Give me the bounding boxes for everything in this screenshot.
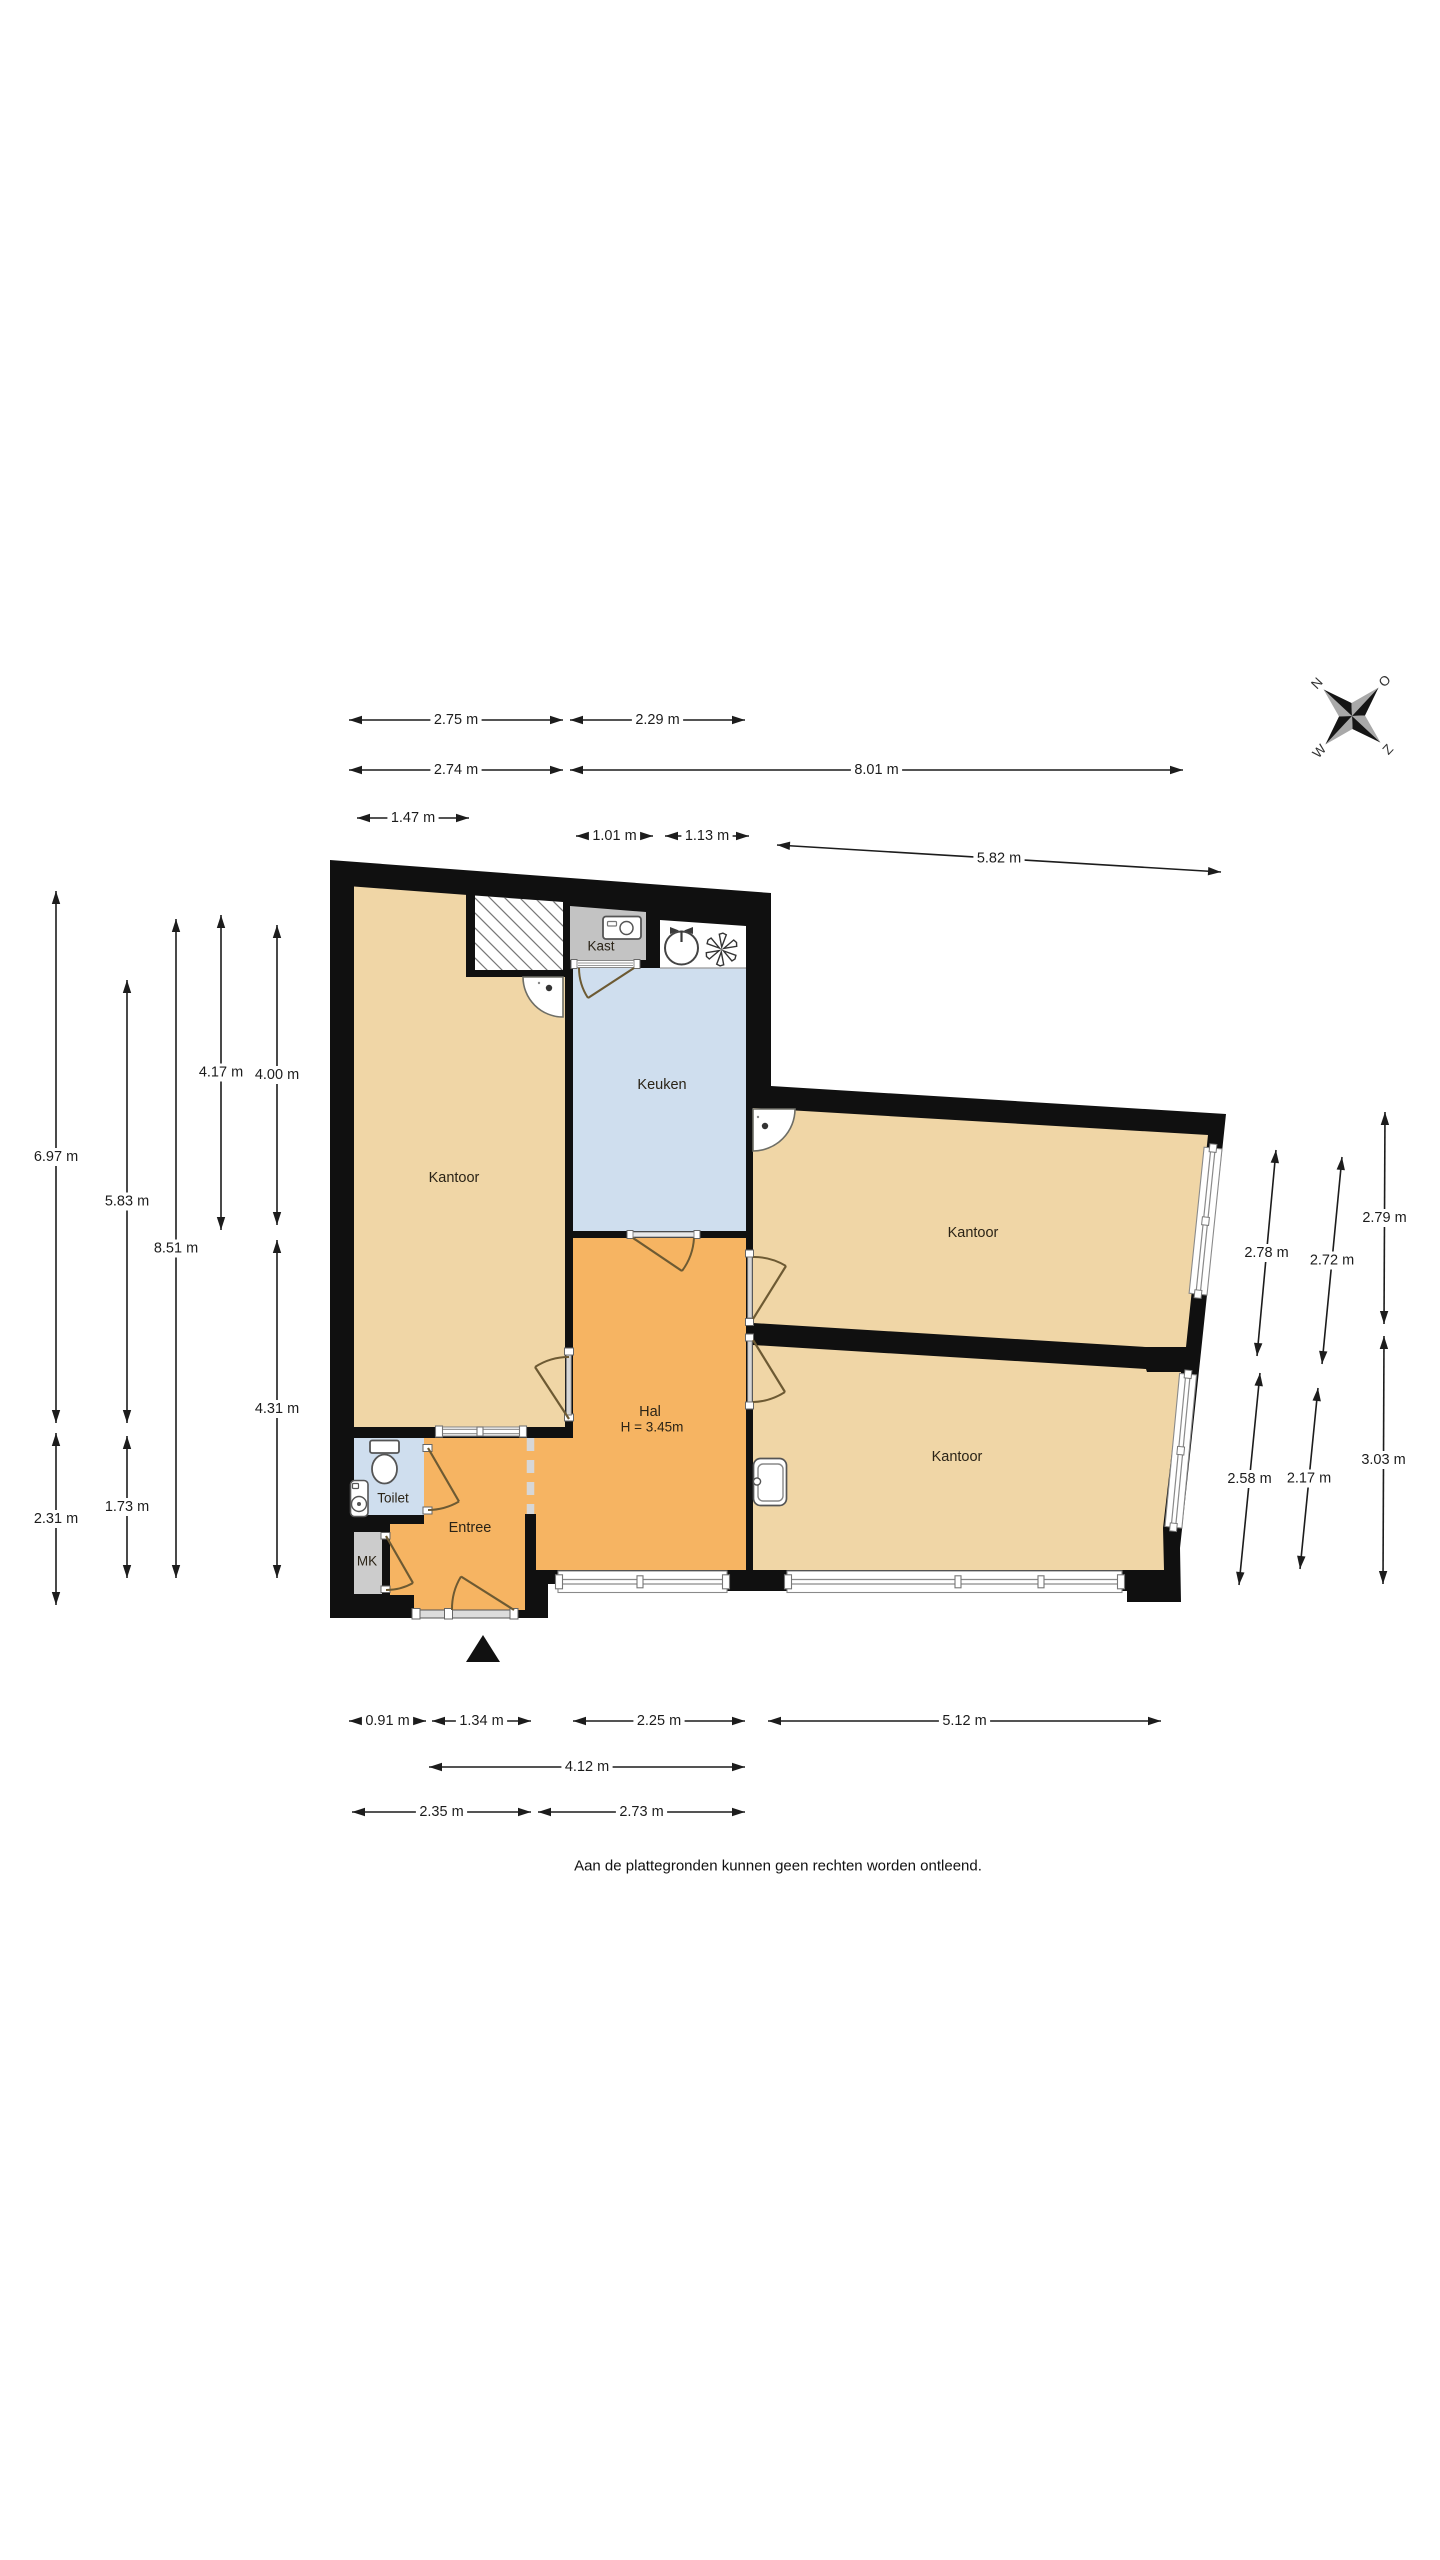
svg-text:Toilet: Toilet <box>377 1491 409 1506</box>
svg-text:2.72 m: 2.72 m <box>1310 1253 1354 1269</box>
svg-text:4.00 m: 4.00 m <box>255 1067 299 1083</box>
svg-text:Kantoor: Kantoor <box>932 1449 983 1465</box>
svg-text:2.79 m: 2.79 m <box>1362 1210 1406 1226</box>
svg-text:2.29 m: 2.29 m <box>635 712 679 728</box>
svg-text:2.73 m: 2.73 m <box>619 1804 663 1820</box>
svg-text:Kantoor: Kantoor <box>948 1225 999 1241</box>
svg-text:Aan de plattegronden kunnen ge: Aan de plattegronden kunnen geen rechten… <box>574 1858 982 1875</box>
svg-text:MK: MK <box>357 1554 377 1569</box>
svg-text:4.17 m: 4.17 m <box>199 1065 243 1081</box>
svg-text:2.17 m: 2.17 m <box>1287 1471 1331 1487</box>
svg-text:4.31 m: 4.31 m <box>255 1401 299 1417</box>
svg-text:2.25 m: 2.25 m <box>637 1713 681 1729</box>
svg-text:N: N <box>1308 675 1326 692</box>
svg-text:Kast: Kast <box>587 939 614 954</box>
svg-text:W: W <box>1309 741 1329 761</box>
svg-text:5.83 m: 5.83 m <box>105 1194 149 1210</box>
svg-text:2.78 m: 2.78 m <box>1244 1245 1288 1261</box>
svg-text:5.12 m: 5.12 m <box>942 1713 986 1729</box>
svg-text:1.73 m: 1.73 m <box>105 1499 149 1515</box>
svg-text:2.58 m: 2.58 m <box>1227 1471 1271 1487</box>
svg-text:5.82 m: 5.82 m <box>977 851 1021 867</box>
svg-text:Entree: Entree <box>449 1520 492 1536</box>
svg-text:8.01 m: 8.01 m <box>854 762 898 778</box>
svg-text:O: O <box>1376 672 1394 690</box>
svg-text:Z: Z <box>1380 741 1397 757</box>
svg-text:1.01 m: 1.01 m <box>592 828 636 844</box>
svg-text:2.31 m: 2.31 m <box>34 1511 78 1527</box>
svg-text:Hal: Hal <box>639 1404 661 1420</box>
svg-text:2.74 m: 2.74 m <box>434 762 478 778</box>
svg-text:6.97 m: 6.97 m <box>34 1149 78 1165</box>
svg-text:1.13 m: 1.13 m <box>685 828 729 844</box>
svg-text:H = 3.45m: H = 3.45m <box>621 1420 684 1435</box>
svg-text:1.47 m: 1.47 m <box>391 810 435 826</box>
svg-text:1.34 m: 1.34 m <box>459 1713 503 1729</box>
svg-text:0.91 m: 0.91 m <box>365 1713 409 1729</box>
svg-text:8.51 m: 8.51 m <box>154 1241 198 1257</box>
svg-text:4.12 m: 4.12 m <box>565 1759 609 1775</box>
svg-text:Keuken: Keuken <box>637 1077 686 1093</box>
svg-text:Kantoor: Kantoor <box>429 1170 480 1186</box>
svg-text:2.35 m: 2.35 m <box>419 1804 463 1820</box>
svg-text:3.03 m: 3.03 m <box>1361 1452 1405 1468</box>
svg-text:2.75 m: 2.75 m <box>434 712 478 728</box>
